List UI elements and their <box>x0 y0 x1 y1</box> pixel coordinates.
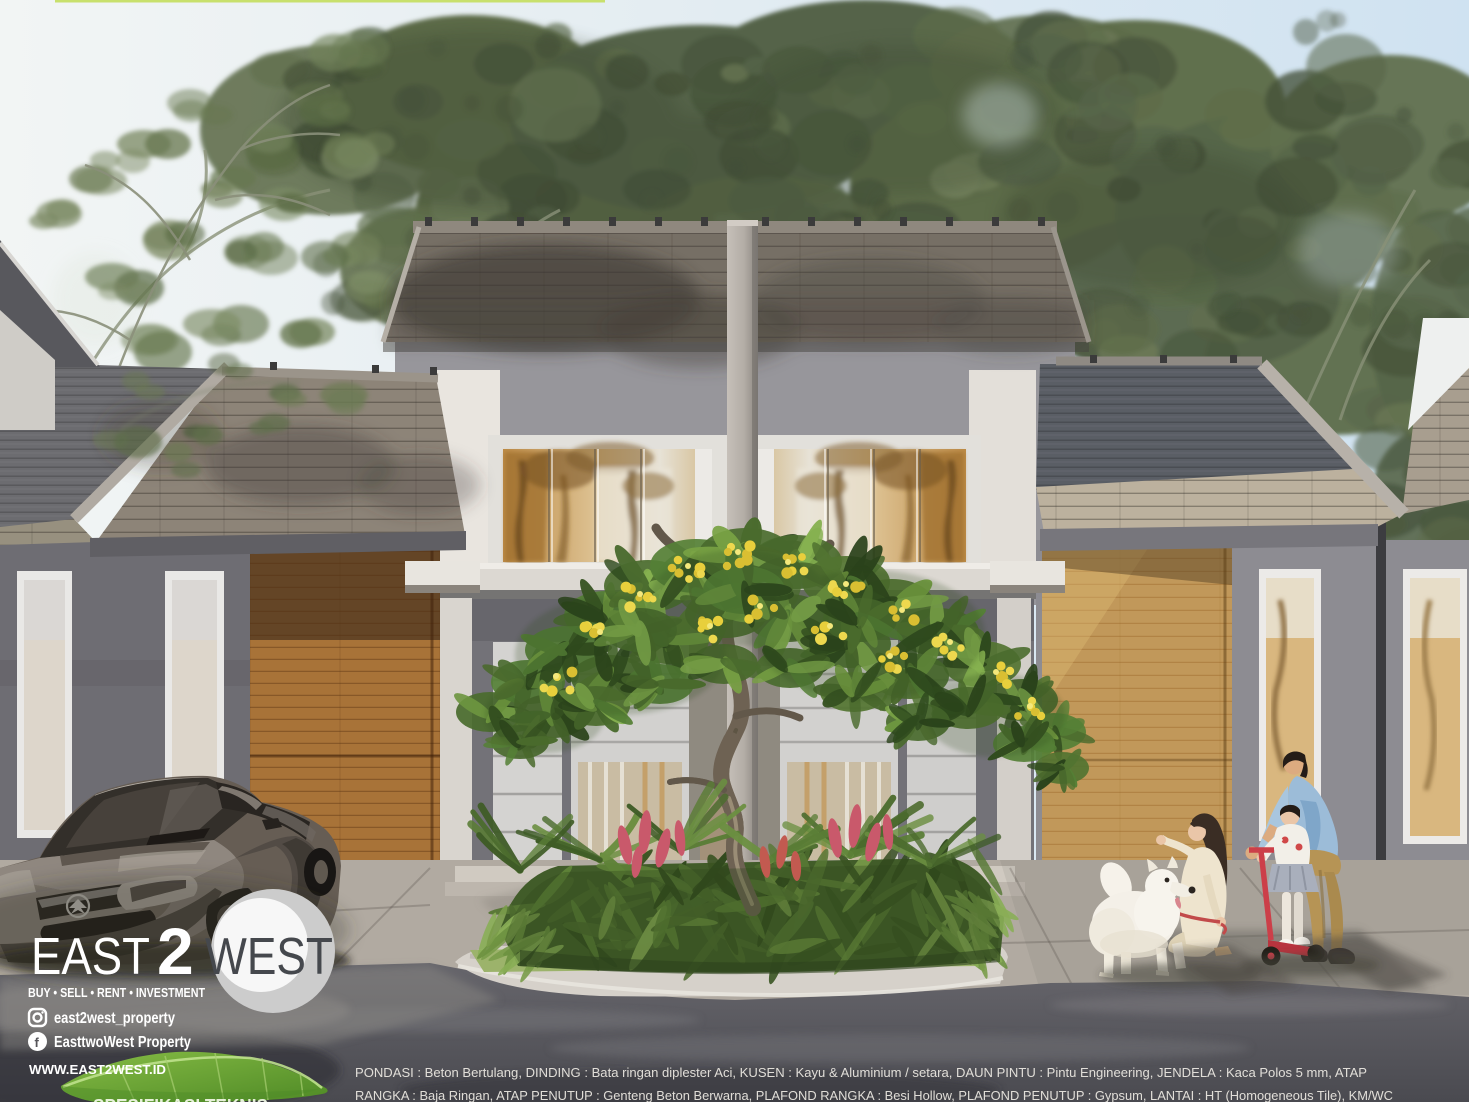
svg-text:WEST: WEST <box>205 928 333 986</box>
svg-text:PONDASI : Beton Bertulang, DIN: PONDASI : Beton Bertulang, DINDING : Bat… <box>355 1066 1367 1080</box>
svg-text:f: f <box>35 1035 40 1050</box>
svg-text:WWW.EAST2WEST.ID: WWW.EAST2WEST.ID <box>29 1063 166 1077</box>
svg-text:RANGKA : Baja Ringan, ATAP PEN: RANGKA : Baja Ringan, ATAP PENUTUP : Gen… <box>355 1089 1393 1102</box>
svg-text:EAST: EAST <box>31 928 150 986</box>
svg-text:east2west_property: east2west_property <box>54 1010 175 1027</box>
svg-text:EasttwoWest Property: EasttwoWest Property <box>54 1034 191 1051</box>
svg-text:SPESIFIKASI TEKNIS: SPESIFIKASI TEKNIS <box>93 1096 268 1102</box>
svg-text:BUY • SELL • RENT • INVESTMENT: BUY • SELL • RENT • INVESTMENT <box>28 985 205 1000</box>
svg-text:2: 2 <box>157 914 194 988</box>
